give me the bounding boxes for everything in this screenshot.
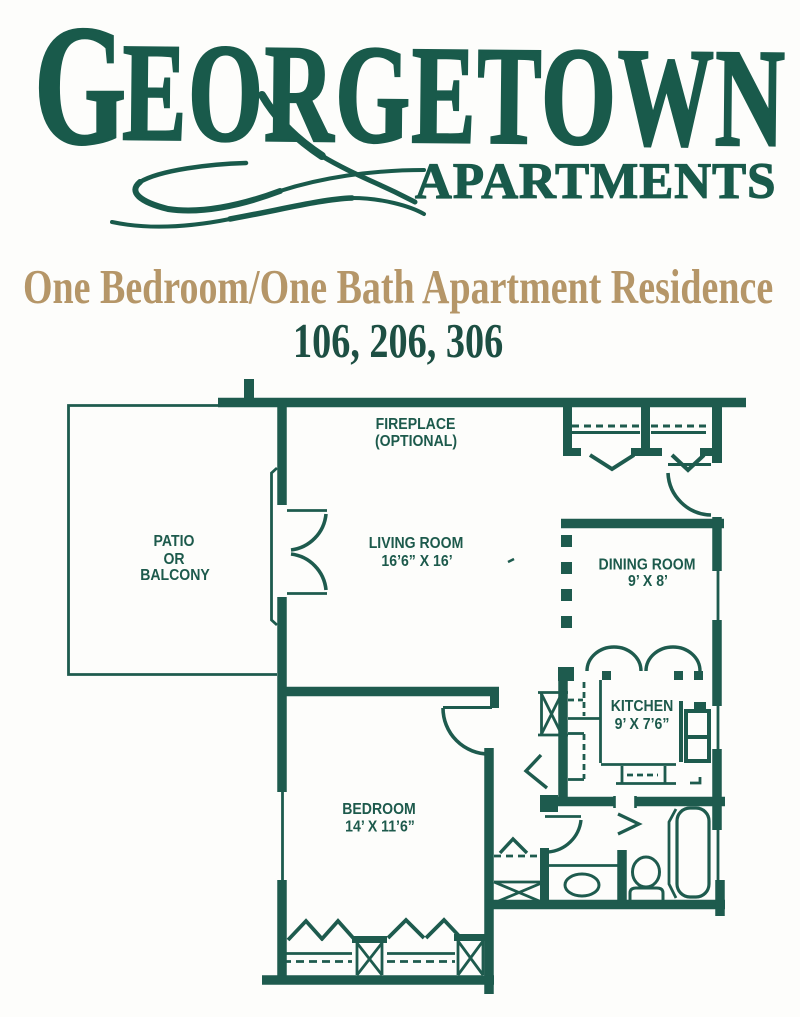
svg-text:One Bedroom/One Bath Apartment: One Bedroom/One Bath Apartment Residence xyxy=(23,261,773,315)
svg-text:(OPTIONAL): (OPTIONAL) xyxy=(375,432,457,450)
svg-text:14’ X 11’6”: 14’ X 11’6” xyxy=(345,818,415,836)
svg-text:BEDROOM: BEDROOM xyxy=(342,800,416,818)
svg-text:9’ X 8’: 9’ X 8’ xyxy=(628,572,668,590)
svg-text:EORGETOWN: EORGETOWN xyxy=(122,14,787,175)
svg-text:LIVING ROOM: LIVING ROOM xyxy=(369,534,464,552)
svg-text:KITCHEN: KITCHEN xyxy=(611,697,674,715)
svg-text:BALCONY: BALCONY xyxy=(140,566,210,584)
svg-text:16’6” X 16’: 16’6” X 16’ xyxy=(381,552,452,570)
svg-text:FIREPLACE: FIREPLACE xyxy=(376,415,456,433)
svg-text:9’ X 7’6”: 9’ X 7’6” xyxy=(615,715,670,733)
svg-text:G: G xyxy=(34,0,126,180)
svg-text:DINING ROOM: DINING ROOM xyxy=(599,556,696,574)
svg-text:APARTMENTS: APARTMENTS xyxy=(415,154,776,210)
svg-text:PATIO: PATIO xyxy=(154,532,195,550)
svg-text:106, 206, 306: 106, 206, 306 xyxy=(293,314,503,369)
